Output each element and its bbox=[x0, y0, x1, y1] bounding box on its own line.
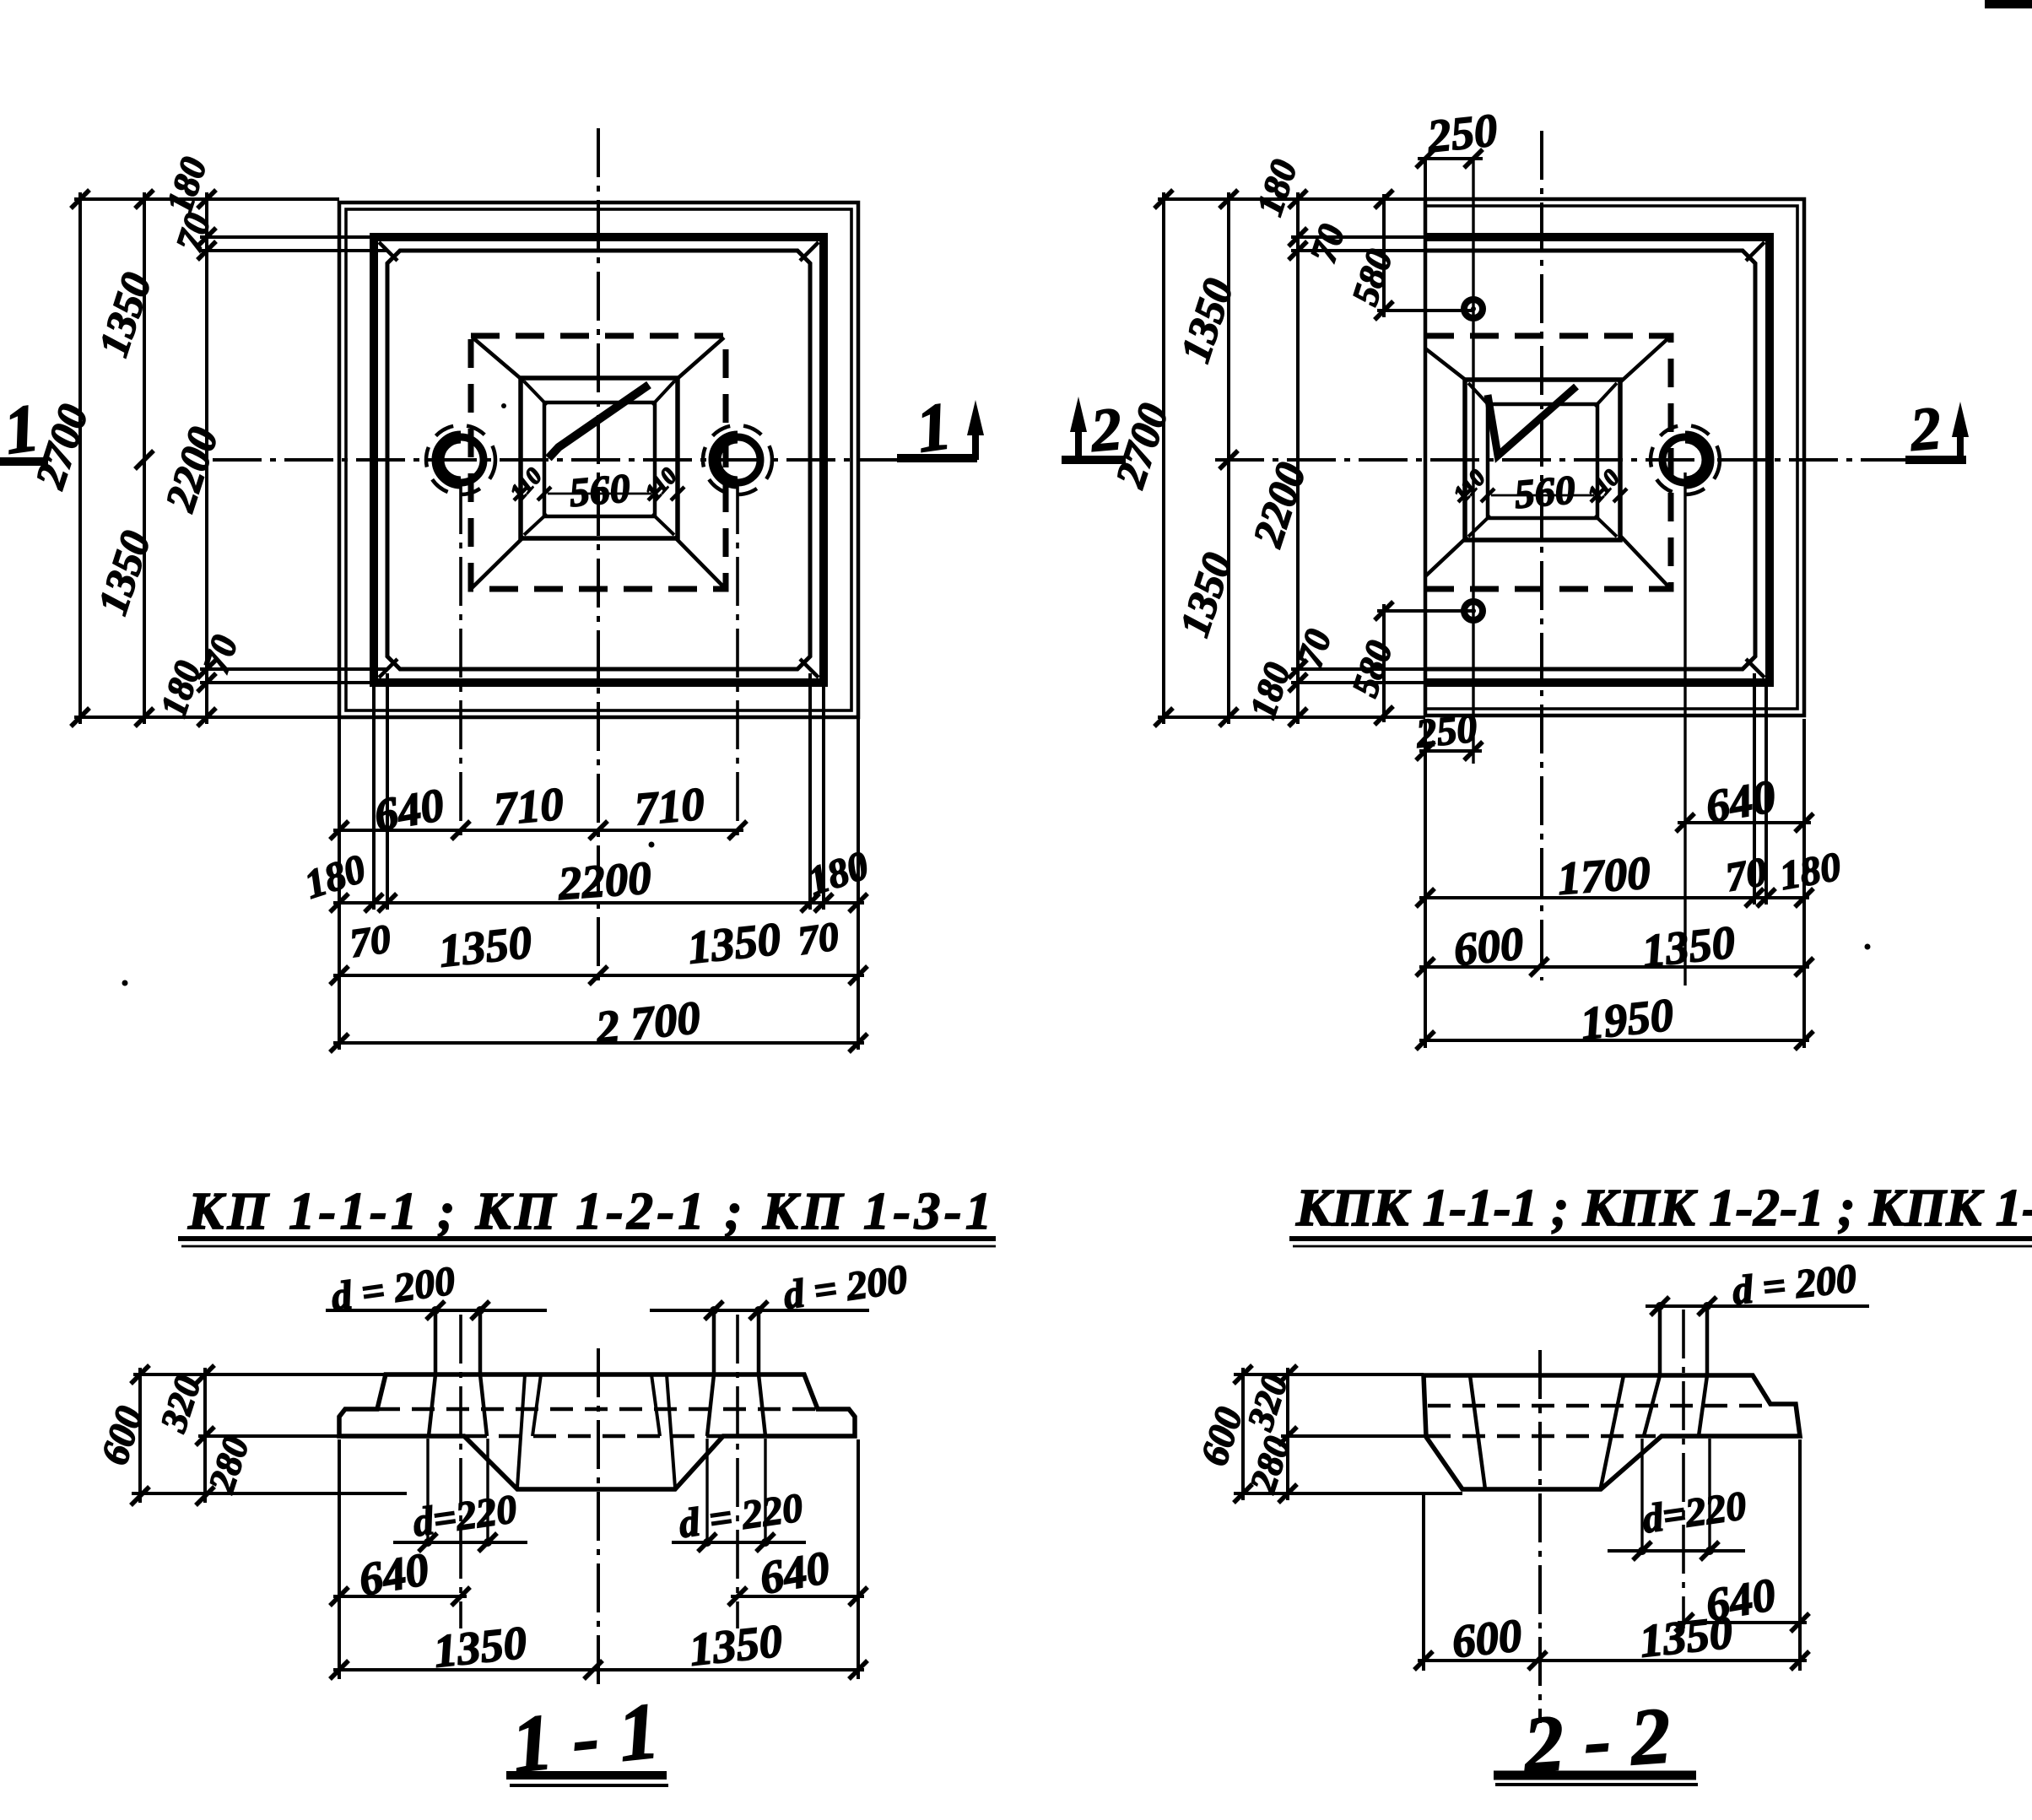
svg-text:КПК 1-1-1 ; КПК 1-2-1 ; КПК 1-: КПК 1-1-1 ; КПК 1-2-1 ; КПК 1-3-1 bbox=[1295, 1180, 2032, 1237]
svg-text:1950: 1950 bbox=[1578, 989, 1676, 1050]
svg-text:2200: 2200 bbox=[556, 851, 653, 910]
svg-text:1350: 1350 bbox=[1637, 1607, 1735, 1667]
svg-text:710: 710 bbox=[633, 778, 707, 835]
svg-text:70: 70 bbox=[1722, 849, 1770, 900]
svg-text:560: 560 bbox=[1512, 467, 1576, 517]
svg-text:1350: 1350 bbox=[685, 913, 783, 974]
svg-text:70: 70 bbox=[795, 914, 841, 964]
svg-text:1350: 1350 bbox=[1640, 916, 1737, 977]
svg-text:600: 600 bbox=[1450, 1609, 1524, 1667]
svg-text:1350: 1350 bbox=[436, 916, 534, 977]
svg-text:1350: 1350 bbox=[687, 1615, 785, 1676]
svg-text:70: 70 bbox=[347, 916, 393, 966]
svg-text:250: 250 bbox=[1424, 104, 1500, 162]
svg-text:250: 250 bbox=[1413, 705, 1479, 756]
svg-text:2: 2 bbox=[1906, 394, 1943, 464]
svg-text:2 700: 2 700 bbox=[592, 991, 702, 1054]
svg-text:600: 600 bbox=[1451, 917, 1526, 975]
svg-text:1350: 1350 bbox=[431, 1617, 529, 1677]
svg-text:КП 1-1-1 ; КП 1-2-1 ; КП 1-3-1: КП 1-1-1 ; КП 1-2-1 ; КП 1-3-1 bbox=[187, 1183, 992, 1240]
svg-text:1700: 1700 bbox=[1556, 846, 1652, 905]
svg-text:710: 710 bbox=[492, 778, 566, 835]
